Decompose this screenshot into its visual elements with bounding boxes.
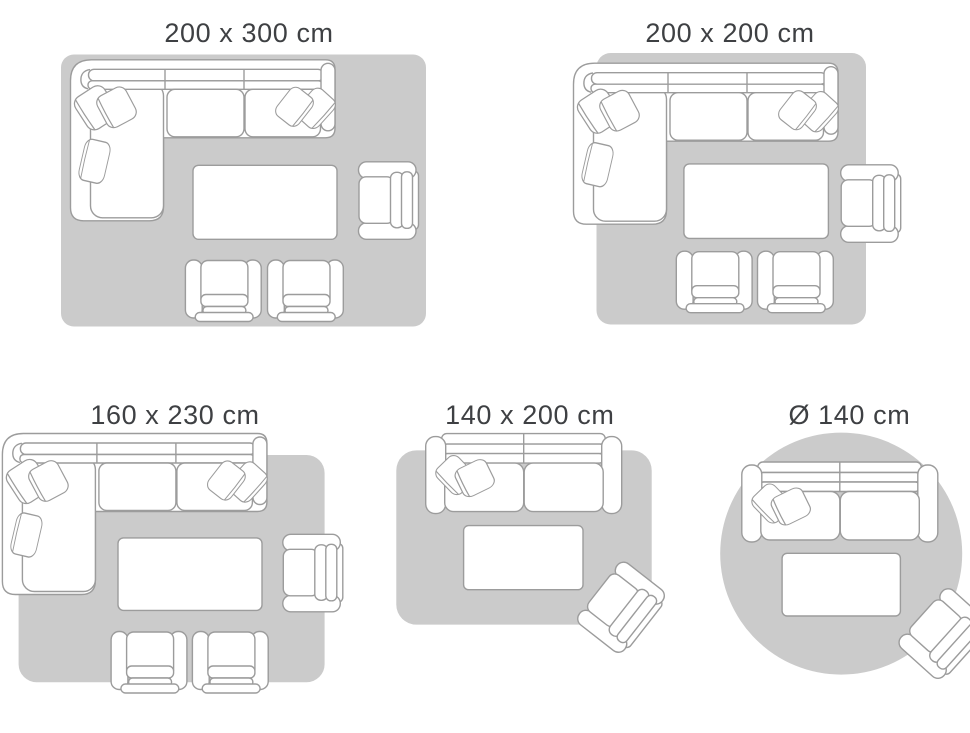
svg-text:140 x 200 cm: 140 x 200 cm [445,400,614,430]
svg-text:Ø 140 cm: Ø 140 cm [788,400,910,430]
svg-text:200 x 300 cm: 200 x 300 cm [164,18,333,48]
svg-text:160 x 230 cm: 160 x 230 cm [90,400,259,430]
svg-text:200 x 200 cm: 200 x 200 cm [645,18,814,48]
